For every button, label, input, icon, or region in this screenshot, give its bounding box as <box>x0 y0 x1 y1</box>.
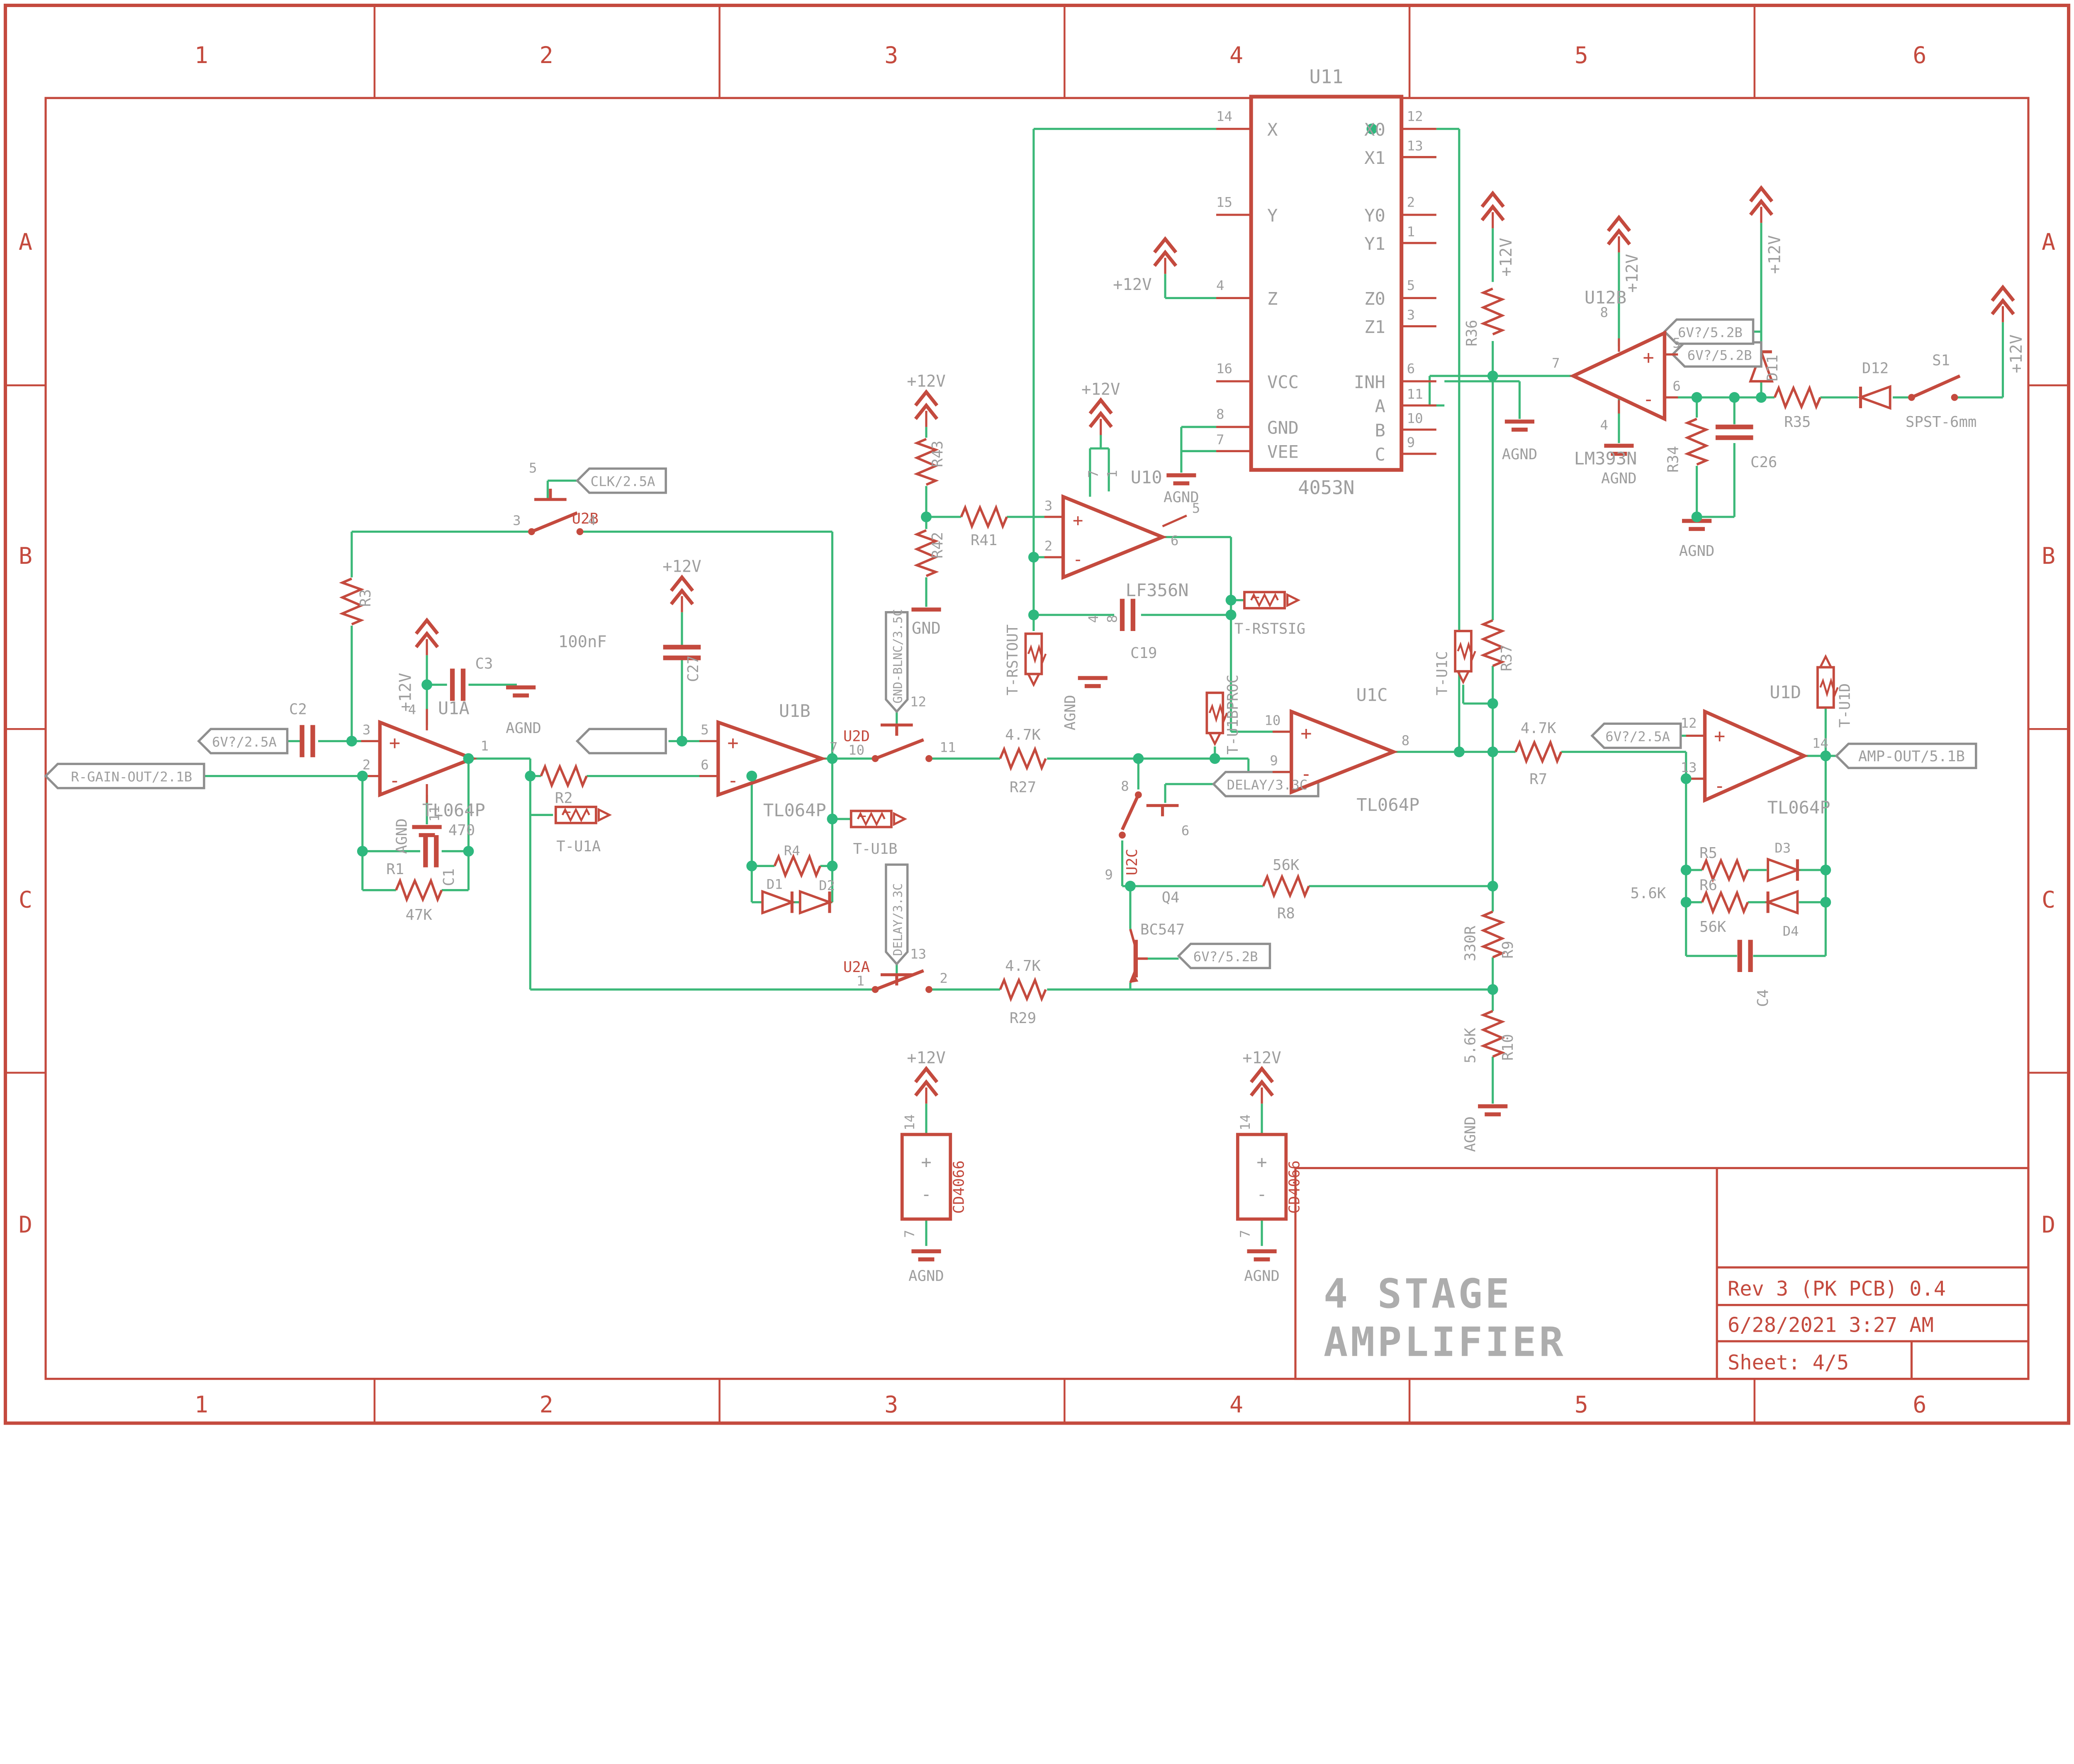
schematic-label: 470 <box>448 822 475 839</box>
schematic-label: C27 <box>685 655 702 682</box>
schematic-label: 13 <box>1681 760 1697 775</box>
schematic-label: R36 <box>1463 320 1480 346</box>
schematic-label: 56K <box>1699 919 1726 936</box>
schematic-label: D12 <box>1862 360 1889 377</box>
schematic-label: C3 <box>475 655 493 672</box>
schematic-label: +12V <box>2007 334 2026 373</box>
schematic-label: + <box>389 732 400 754</box>
border-column-label: 2 <box>540 1391 553 1418</box>
schematic-label: 6 <box>1181 823 1189 838</box>
sheet-title-line1: 4 STAGE <box>1324 1270 1512 1317</box>
schematic-label: 4 <box>1216 278 1224 293</box>
schematic-label: 12 <box>1681 715 1697 731</box>
schematic-label: AGND <box>506 720 541 737</box>
border-row-label: C <box>2042 887 2055 913</box>
schematic-label: R27 <box>1010 779 1036 796</box>
schematic-label: Z <box>1267 289 1278 309</box>
schematic-label: CD4066 <box>1286 1160 1303 1214</box>
schematic-label: 10 <box>848 742 864 758</box>
title-date: 6/28/2021 3:27 AM <box>1728 1313 1934 1337</box>
schematic-label: +12V <box>1623 254 1642 293</box>
schematic-label: T-U1C <box>1434 651 1451 695</box>
schematic-label: 5 <box>1407 278 1415 293</box>
schematic-label: X0 <box>1364 119 1385 140</box>
schematic-label: R10 <box>1500 1034 1517 1060</box>
schematic-label: 4 <box>1600 417 1608 433</box>
schematic-label: AGND <box>1679 543 1715 560</box>
schematic-label: + <box>1300 722 1312 744</box>
schematic-label: 5.6K <box>1462 1028 1479 1063</box>
schematic-label: C26 <box>1750 454 1777 471</box>
schematic-label: 7 <box>830 739 837 755</box>
schematic-label: 4 <box>408 702 416 718</box>
sheet-background <box>0 0 2074 1428</box>
border-row-label: C <box>19 887 32 913</box>
schematic-label: 6 <box>701 757 708 772</box>
schematic-label: C19 <box>1130 645 1157 662</box>
schematic-label: D3 <box>1775 840 1791 856</box>
schematic-label: S1 <box>1932 352 1950 369</box>
title-sheet: Sheet: 4/5 <box>1728 1351 1849 1374</box>
schematic-label: 9 <box>1270 753 1278 769</box>
schematic-label: 5 <box>701 722 708 738</box>
schematic-label: 13 <box>910 946 926 962</box>
schematic-label: Z0 <box>1364 289 1385 309</box>
schematic-label: T-RSTSIG <box>1234 621 1305 638</box>
schematic-label: AGND <box>908 1267 944 1284</box>
schematic-label: - <box>727 769 738 791</box>
schematic-label: U1A <box>438 698 470 719</box>
schematic-label: T-RSTOUT <box>1004 624 1021 695</box>
schematic-label: R37 <box>1498 645 1515 671</box>
schematic-label: CD4066 <box>951 1160 968 1214</box>
schematic-label: R2 <box>555 789 573 806</box>
schematic-label: 12 <box>910 694 926 709</box>
schematic-label: 7 <box>1237 1230 1253 1238</box>
schematic-label: AGND <box>1502 446 1538 463</box>
schematic-label: 11 <box>1407 386 1423 402</box>
schematic-label: 3 <box>1044 498 1052 514</box>
schematic-label: - <box>1643 388 1654 410</box>
schematic-label: BC547 <box>1140 921 1185 938</box>
schematic-label: R3 <box>357 589 374 607</box>
schematic-label: D4 <box>1783 923 1799 939</box>
schematic-label: +12V <box>1081 380 1120 399</box>
schematic-label: - <box>1256 1184 1267 1204</box>
schematic-label: Q4 <box>1162 889 1180 906</box>
schematic-label: INH <box>1354 372 1385 392</box>
schematic-label: T-U1BPROC <box>1224 675 1241 755</box>
border-column-label: 2 <box>540 42 553 68</box>
schematic-label: R29 <box>1010 1010 1036 1027</box>
schematic-label: 5 <box>529 460 537 476</box>
schematic-label: 4 <box>588 512 596 528</box>
schematic-label: 7 <box>1216 432 1224 448</box>
schematic-label: Y1 <box>1364 234 1385 254</box>
schematic-label: LF356N <box>1126 580 1189 600</box>
schematic-label: 11 <box>940 739 956 755</box>
schematic-label: TL064P <box>1767 797 1831 818</box>
schematic-label: R-GAIN-OUT/2.1B <box>71 769 192 785</box>
border-column-label: 6 <box>1913 42 1926 68</box>
schematic-label: R4 <box>784 843 800 858</box>
schematic-label: R6 <box>1699 877 1717 894</box>
schematic-label: A <box>1375 396 1385 417</box>
schematic-label: C4 <box>1755 989 1772 1007</box>
schematic-label: +12V <box>907 1049 946 1067</box>
schematic-label: + <box>1643 346 1654 368</box>
schematic-label: C2 <box>289 701 307 718</box>
schematic-label: 47K <box>406 906 433 923</box>
schematic-label: - <box>1300 763 1312 785</box>
schematic-label: AGND <box>1062 695 1079 731</box>
border-column-label: 6 <box>1913 1391 1926 1418</box>
schematic-label: AMP-OUT/5.1B <box>1858 748 1965 765</box>
schematic-label: + <box>1256 1152 1267 1172</box>
schematic-label: 10 <box>1264 713 1280 729</box>
schematic-label: T-U1A <box>556 838 601 855</box>
schematic-label: TL064P <box>1356 795 1419 815</box>
schematic-label: +12V <box>1113 275 1152 294</box>
schematic-label: 2 <box>363 757 370 772</box>
schematic-label: R35 <box>1784 414 1811 431</box>
schematic-label: - <box>921 1184 931 1204</box>
schematic-label: 8 <box>1216 407 1224 422</box>
schematic-label: U1B <box>779 701 811 721</box>
schematic-label: 16 <box>1216 361 1232 377</box>
border-column-label: 3 <box>884 42 898 68</box>
schematic-label: 14 <box>1216 108 1232 124</box>
schematic-label: 6 <box>1672 378 1680 394</box>
schematic-label: 8 <box>1105 615 1120 623</box>
border-column-label: 1 <box>195 1391 208 1418</box>
schematic-label: 4.7K <box>1005 726 1041 743</box>
schematic-label: 10 <box>1407 410 1423 426</box>
schematic-label: AGND <box>1601 470 1637 487</box>
schematic-label: - <box>1073 549 1083 569</box>
schematic-label: CLK/2.5A <box>591 474 655 490</box>
border-column-label: 3 <box>884 1391 898 1418</box>
schematic-label: R9 <box>1500 941 1517 959</box>
schematic-label: T-U1D <box>1837 683 1854 728</box>
schematic-label: 1 <box>481 738 489 754</box>
schematic-label: 4.7K <box>1521 720 1556 737</box>
schematic-label: 100nF <box>558 633 607 651</box>
border-row-label: D <box>19 1211 32 1238</box>
schematic-label: + <box>921 1152 931 1172</box>
schematic-label: AGND <box>1244 1267 1280 1284</box>
schematic-label: R42 <box>929 532 946 558</box>
schematic-label: 14 <box>1237 1114 1253 1131</box>
schematic-label: R34 <box>1665 446 1682 473</box>
schematic-label: 2 <box>1044 538 1052 554</box>
schematic-label: DELAY/3.3C <box>891 883 905 956</box>
schematic-label: GND-BLNC/3.5C <box>891 609 905 704</box>
schematic-label: Z1 <box>1364 317 1385 337</box>
border-row-label: B <box>19 543 32 569</box>
schematic-label: X <box>1267 119 1278 140</box>
schematic-label: GND <box>1267 417 1299 438</box>
schematic-label: 4053N <box>1298 477 1354 499</box>
schematic-label: U1D <box>1770 682 1801 702</box>
sheet-title-line2: AMPLIFIER <box>1324 1319 1566 1366</box>
schematic-label: 6 <box>1407 361 1415 377</box>
schematic-label: U2C <box>1124 849 1141 875</box>
schematic-label: R41 <box>971 532 997 549</box>
schematic-label: 8 <box>1402 733 1409 748</box>
schematic-label: 8 <box>1600 305 1608 320</box>
schematic-label: 7 <box>902 1230 918 1238</box>
schematic-label: D2 <box>819 878 835 894</box>
schematic-label: 6V?/5.2B <box>1678 324 1743 340</box>
schematic-label: 6V?/2.5A <box>212 734 277 750</box>
schematic-label: 7 <box>1552 356 1560 371</box>
schematic-canvas: 112233445566AABBCCDD 4 STAGE AMPLIFIER R… <box>0 0 2074 1428</box>
schematic-label: +12V <box>1497 238 1516 277</box>
schematic-label: +12V <box>662 558 701 576</box>
schematic-label: + <box>727 732 738 754</box>
border-row-label: D <box>2042 1211 2055 1238</box>
border-row-label: A <box>19 229 32 255</box>
schematic-label: Y0 <box>1364 205 1385 226</box>
schematic-label: + <box>1073 510 1083 531</box>
schematic-label: Y <box>1267 205 1278 226</box>
schematic-label: U10 <box>1131 467 1162 487</box>
schematic-label: 4.7K <box>1005 958 1041 975</box>
schematic-label: VEE <box>1267 442 1299 462</box>
schematic-label: 12 <box>1407 108 1423 124</box>
schematic-label: SPST-6mm <box>1906 414 1977 431</box>
schematic-label: B <box>1375 420 1385 441</box>
schematic-label: D11 <box>1764 355 1781 381</box>
border-column-label: 4 <box>1229 42 1243 68</box>
schematic-label: 9 <box>1105 867 1112 883</box>
schematic-label: T-U1B <box>853 841 897 858</box>
schematic-label: D1 <box>767 876 783 892</box>
schematic-label: GND <box>912 619 941 638</box>
schematic-label: 6V?/2.5A <box>1605 729 1670 744</box>
schematic-label: 14 <box>1812 736 1828 751</box>
schematic-label: R1 <box>386 861 404 878</box>
schematic-label: 56K <box>1273 857 1300 874</box>
border-column-label: 5 <box>1575 42 1588 68</box>
border-column-label: 5 <box>1575 1391 1588 1418</box>
schematic-label: LM393N <box>1574 448 1637 469</box>
schematic-label: 330R <box>1462 926 1479 961</box>
schematic-label: 1 <box>857 973 864 989</box>
schematic-label: 3 <box>513 512 521 528</box>
schematic-label: C <box>1375 444 1385 465</box>
border-row-label: B <box>2042 543 2055 569</box>
schematic-label: 5 <box>1192 500 1200 516</box>
schematic-label: 3 <box>1407 307 1415 323</box>
border-column-label: 4 <box>1229 1391 1243 1418</box>
schematic-label: +12V <box>907 372 946 391</box>
schematic-label: 13 <box>1407 138 1423 153</box>
schematic-label: C1 <box>441 868 458 886</box>
schematic-label: 2 <box>940 970 947 986</box>
schematic-label: U11 <box>1309 66 1343 88</box>
schematic-label: 15 <box>1216 194 1232 210</box>
schematic-label: 14 <box>902 1114 918 1131</box>
schematic-label: 6 <box>1171 533 1178 548</box>
schematic-label: 4 <box>1086 615 1101 623</box>
schematic-label: 9 <box>1407 435 1415 451</box>
schematic-label: 1 <box>1105 470 1120 478</box>
schematic-label: R8 <box>1277 905 1295 922</box>
schematic-label: VCC <box>1267 372 1299 392</box>
schematic-label: - <box>1714 775 1725 797</box>
schematic-label: 2 <box>1407 194 1415 210</box>
schematic-label: AGND <box>1462 1116 1479 1152</box>
border-row-label: A <box>2042 229 2055 255</box>
border-column-label: 1 <box>195 42 208 68</box>
schematic-label: 6V?/5.2B <box>1193 949 1258 965</box>
title-rev: Rev 3 (PK PCB) 0.4 <box>1728 1277 1946 1301</box>
schematic-label: U1C <box>1356 685 1388 705</box>
schematic-label: 7 <box>1086 470 1101 478</box>
schematic-label: - <box>389 769 400 791</box>
schematic-label: R5 <box>1699 845 1717 862</box>
schematic-label: 8 <box>1121 778 1129 794</box>
schematic-label: 5.6K <box>1630 885 1666 902</box>
schematic-label: X1 <box>1364 148 1385 168</box>
schematic-label: 1 <box>1407 224 1415 240</box>
schematic-label: +12V <box>1765 235 1784 274</box>
schematic-label: + <box>1714 725 1725 747</box>
schematic-label: DELAY/3.3C <box>1227 777 1308 793</box>
schematic-label: +12V <box>1242 1049 1281 1067</box>
schematic-label: AGND <box>394 819 411 854</box>
schematic-label: 6V?/5.2B <box>1687 347 1752 363</box>
schematic-label: R43 <box>929 441 946 467</box>
schematic-label: 11 <box>426 806 442 822</box>
schematic-label: 3 <box>363 722 370 738</box>
schematic-label: TL064P <box>763 800 826 821</box>
schematic-label: R7 <box>1529 771 1547 788</box>
